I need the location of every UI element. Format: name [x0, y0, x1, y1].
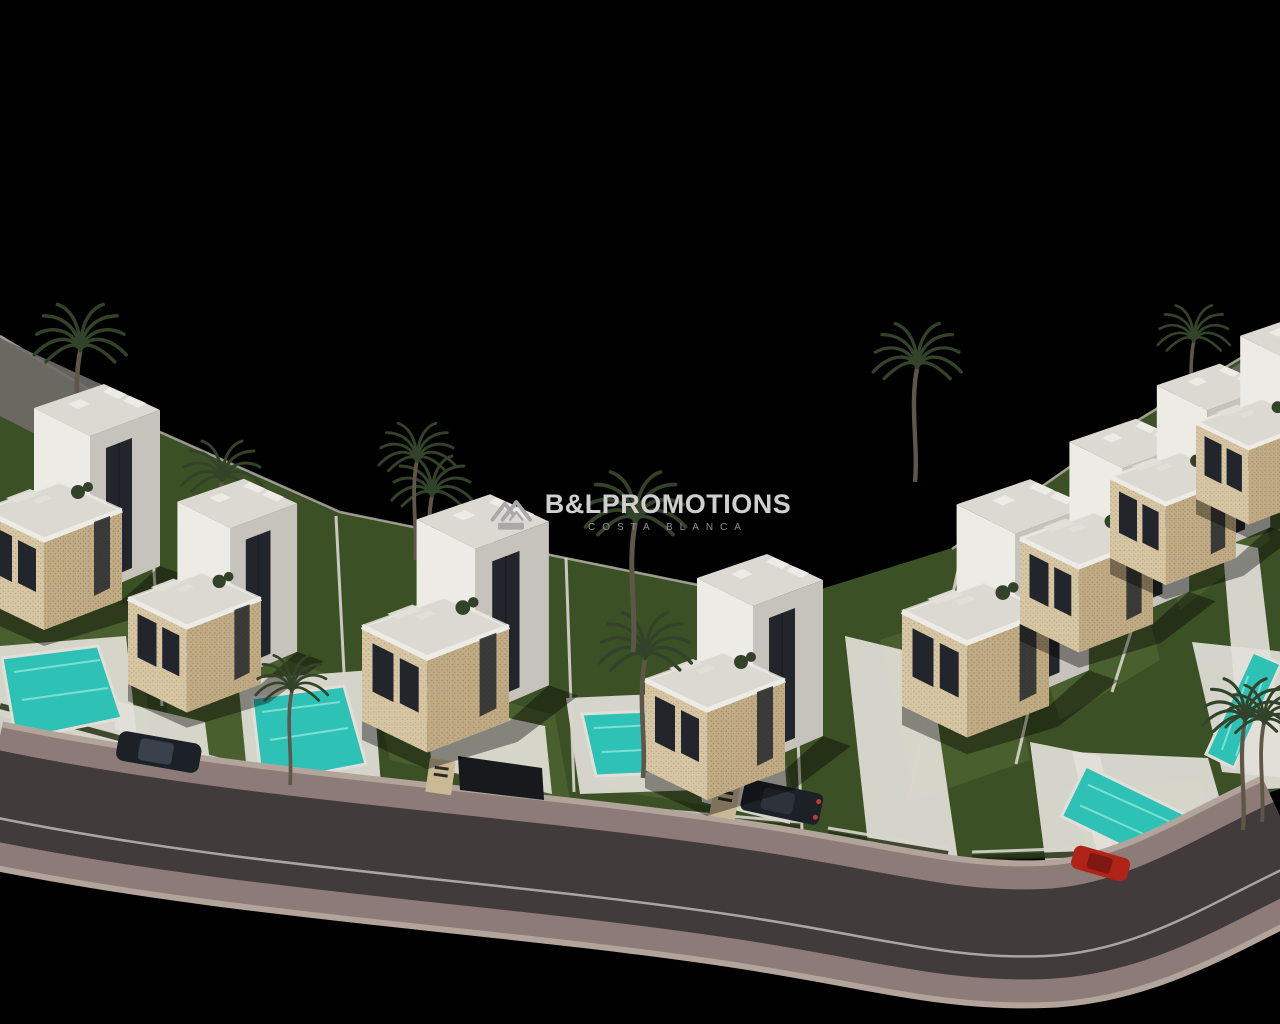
brand-name-rest: PROMOTIONS: [602, 489, 792, 519]
watermark: B&LPROMOTIONS COSTA BLANCA: [489, 490, 792, 534]
brand-name: B&LPROMOTIONS: [545, 491, 792, 518]
render-canvas: B&LPROMOTIONS COSTA BLANCA: [0, 0, 1280, 1024]
brand-text: B&LPROMOTIONS COSTA BLANCA: [545, 491, 792, 533]
villa: [1196, 315, 1280, 538]
brand-name-bold: B&L: [545, 489, 602, 519]
brand-logo-icon: [489, 490, 535, 534]
brand-subtitle: COSTA BLANCA: [545, 522, 792, 533]
palm-tree: [873, 324, 961, 482]
